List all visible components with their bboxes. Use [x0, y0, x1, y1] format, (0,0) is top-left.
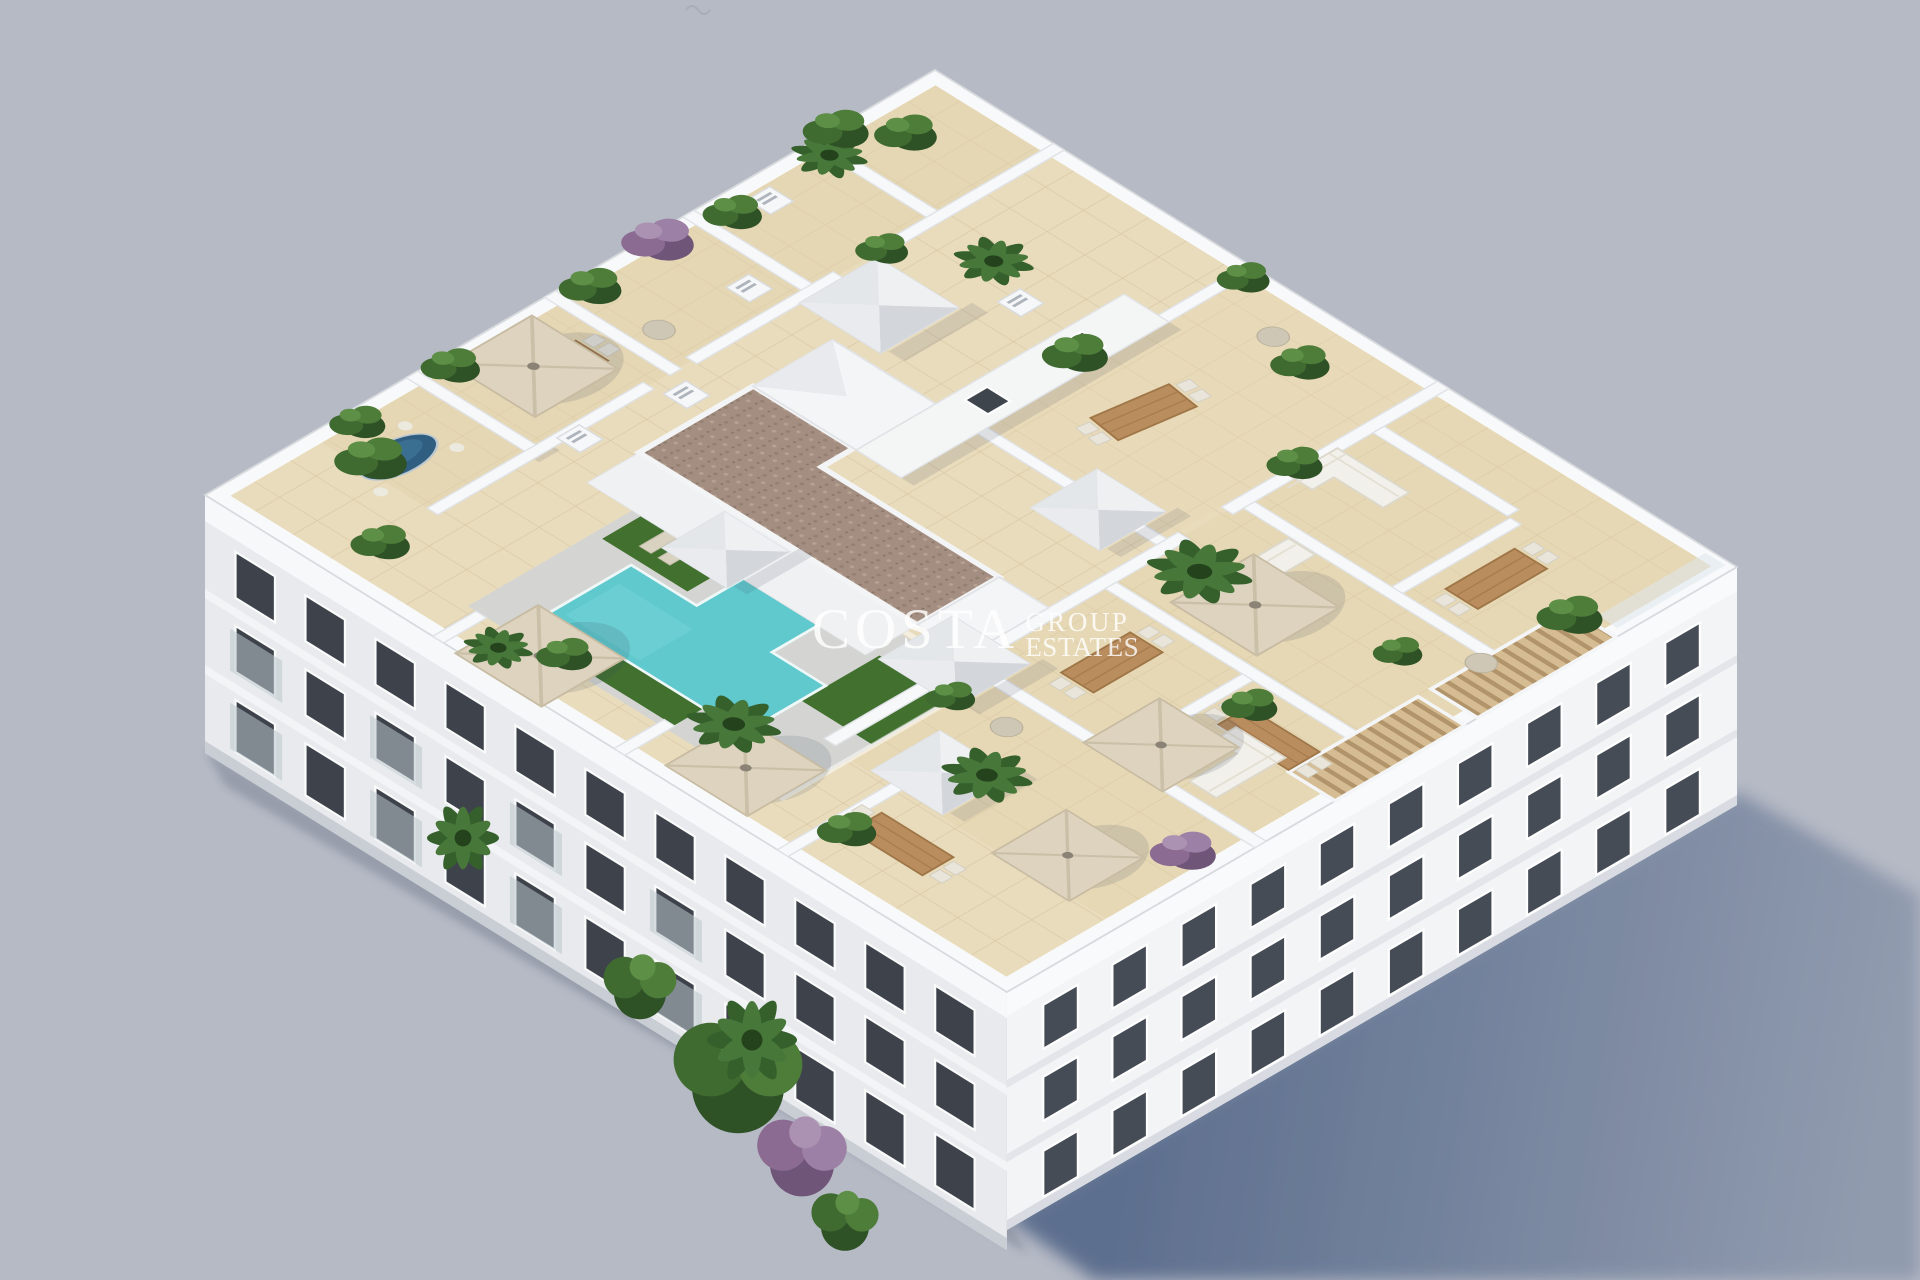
- render-canvas: COSTA GROUP ESTATES: [0, 0, 1920, 1280]
- building-render: [0, 0, 1920, 1280]
